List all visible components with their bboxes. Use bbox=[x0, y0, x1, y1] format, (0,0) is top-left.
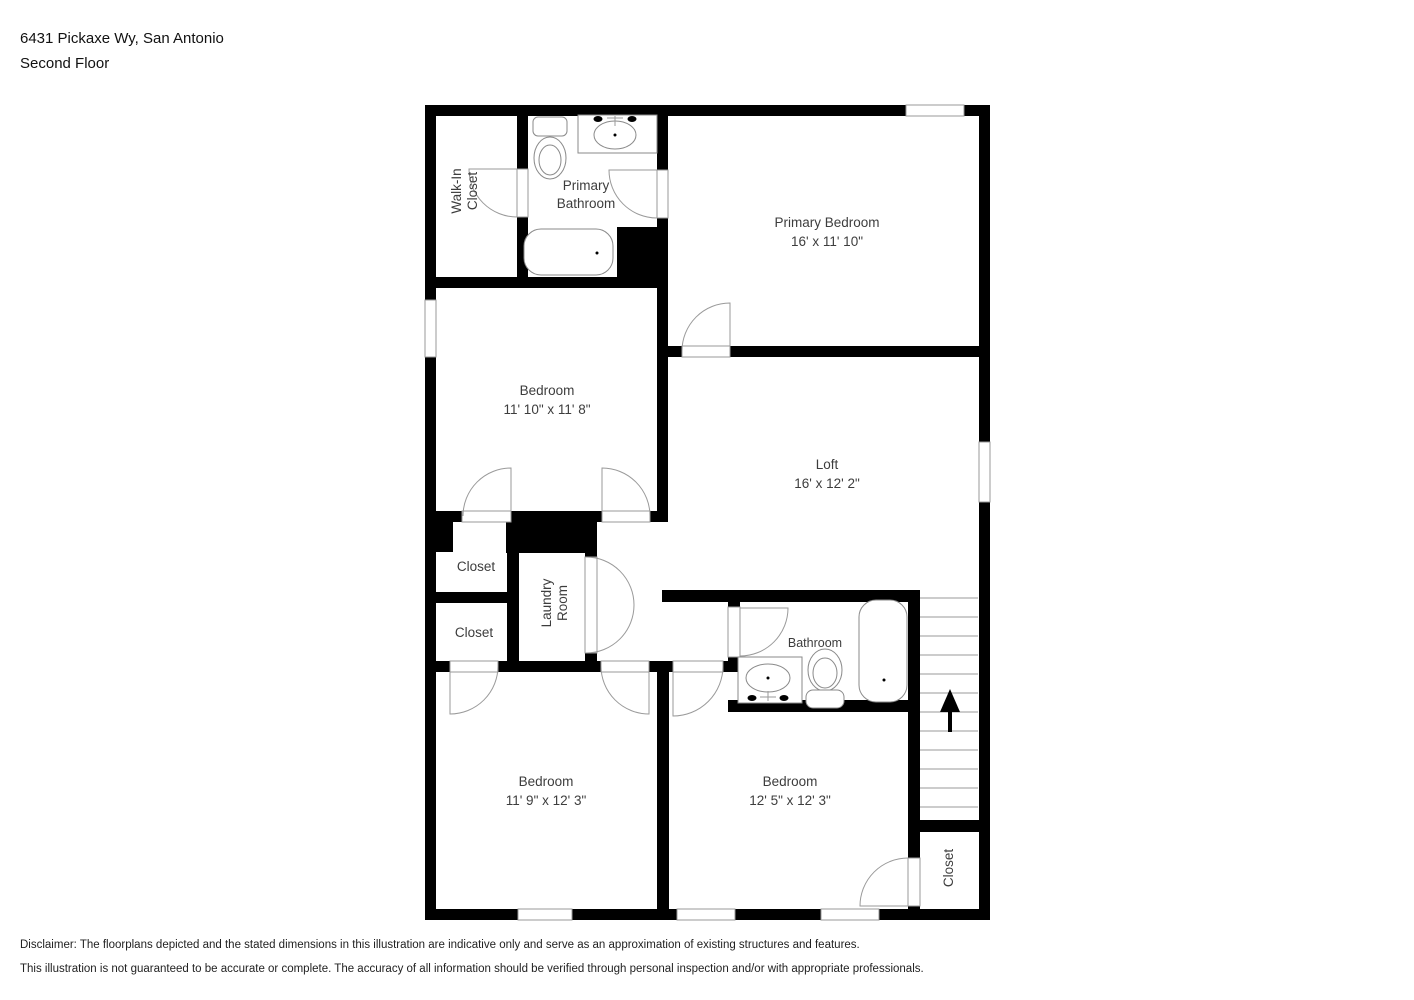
room-dims-bedroom-bottom-left: 11' 9" x 12' 3" bbox=[506, 793, 587, 808]
door-primary-bathroom bbox=[609, 170, 668, 218]
window bbox=[821, 909, 879, 920]
door-bedroom-middle-closet bbox=[462, 468, 511, 522]
room-label-closet-upper: Closet bbox=[457, 559, 496, 574]
sink-icon bbox=[738, 657, 802, 703]
room-label-closet-bottom-right: Closet bbox=[941, 849, 956, 888]
window bbox=[425, 300, 436, 357]
window bbox=[906, 105, 964, 116]
room-label-primary-bathroom: Primary bbox=[563, 178, 610, 193]
room-dims-bedroom-middle: 11' 10" x 11' 8" bbox=[503, 402, 590, 417]
toilet-icon bbox=[806, 649, 844, 708]
door-closet-lower bbox=[450, 661, 498, 714]
room-label-laundry: Laundry bbox=[539, 578, 554, 627]
filled-block bbox=[425, 511, 453, 552]
door-bedroom-bottom-left bbox=[601, 661, 649, 714]
sink-icon bbox=[578, 115, 657, 153]
filled-block bbox=[617, 227, 657, 277]
room-label-closet-lower: Closet bbox=[455, 625, 494, 640]
door-bathroom bbox=[728, 607, 788, 657]
room-dims-loft: 16' x 12' 2" bbox=[794, 476, 860, 491]
door-bedroom-middle-hall bbox=[602, 468, 650, 522]
room-label-loft: Loft bbox=[816, 457, 839, 472]
room-label-laundry: Room bbox=[555, 585, 570, 621]
stairs bbox=[920, 598, 978, 807]
stairs-up-arrow-icon bbox=[940, 689, 960, 732]
room-label-bedroom-middle: Bedroom bbox=[520, 383, 575, 398]
room-label-primary-bathroom: Bathroom bbox=[557, 196, 616, 211]
room-label-bathroom: Bathroom bbox=[788, 636, 842, 650]
room-label-bedroom-bottom-right: Bedroom bbox=[763, 774, 818, 789]
room-label-bedroom-bottom-left: Bedroom bbox=[519, 774, 574, 789]
room-label-primary-bedroom: Primary Bedroom bbox=[774, 215, 879, 230]
room-dims-primary-bedroom: 16' x 11' 10" bbox=[791, 234, 863, 249]
disclaimer-line-2: This illustration is not guaranteed to b… bbox=[20, 963, 924, 975]
door-closet-bottom-right bbox=[860, 858, 920, 906]
bathtub-icon bbox=[859, 600, 907, 702]
room-label-walk-in-closet: Walk-In bbox=[449, 168, 464, 213]
floorplan-svg: Walk-In Closet Primary Bathroom Primary … bbox=[0, 0, 1414, 1000]
window bbox=[677, 909, 735, 920]
door-primary-bedroom bbox=[682, 303, 730, 357]
bathtub-icon bbox=[524, 229, 613, 275]
door-laundry-double bbox=[585, 557, 634, 653]
floorplan-page: 6431 Pickaxe Wy, San Antonio Second Floo… bbox=[0, 0, 1414, 1000]
room-label-walk-in-closet: Closet bbox=[465, 172, 480, 211]
toilet-icon bbox=[533, 117, 567, 179]
disclaimer-line-1: Disclaimer: The floorplans depicted and … bbox=[20, 939, 860, 951]
window bbox=[979, 442, 990, 502]
window bbox=[518, 909, 572, 920]
door-bedroom-bottom-right bbox=[673, 661, 723, 716]
filled-block bbox=[506, 511, 597, 553]
room-dims-bedroom-bottom-right: 12' 5" x 12' 3" bbox=[749, 793, 831, 808]
